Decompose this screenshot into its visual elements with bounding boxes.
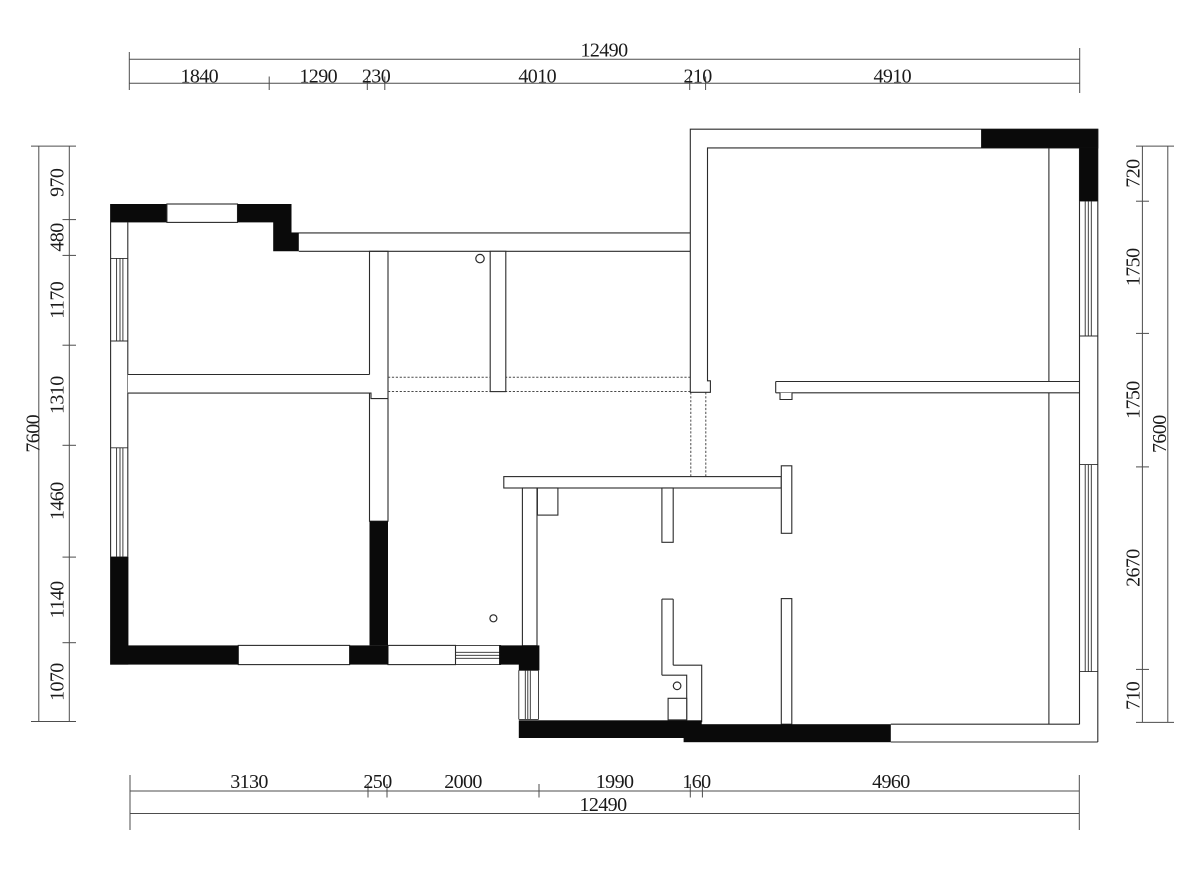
svg-text:720: 720 bbox=[1123, 159, 1145, 188]
svg-text:3130: 3130 bbox=[230, 771, 268, 793]
svg-text:250: 250 bbox=[363, 771, 392, 793]
svg-text:4910: 4910 bbox=[873, 65, 911, 87]
svg-text:1750: 1750 bbox=[1123, 248, 1145, 286]
svg-text:970: 970 bbox=[47, 168, 69, 197]
svg-text:7600: 7600 bbox=[1149, 415, 1171, 453]
svg-text:210: 210 bbox=[683, 65, 712, 87]
svg-text:1460: 1460 bbox=[47, 482, 69, 520]
svg-text:1140: 1140 bbox=[47, 581, 69, 618]
svg-text:2000: 2000 bbox=[444, 771, 482, 793]
svg-text:160: 160 bbox=[682, 771, 711, 793]
svg-text:1990: 1990 bbox=[596, 771, 634, 793]
svg-text:1290: 1290 bbox=[299, 65, 337, 87]
svg-text:710: 710 bbox=[1123, 681, 1145, 710]
svg-text:1070: 1070 bbox=[47, 663, 69, 701]
svg-text:12490: 12490 bbox=[579, 794, 627, 816]
svg-text:1750: 1750 bbox=[1123, 381, 1145, 419]
svg-text:1170: 1170 bbox=[47, 281, 69, 318]
svg-text:1310: 1310 bbox=[47, 376, 69, 414]
svg-text:230: 230 bbox=[362, 65, 391, 87]
svg-text:7600: 7600 bbox=[23, 414, 45, 452]
svg-text:480: 480 bbox=[47, 223, 69, 252]
svg-text:12490: 12490 bbox=[580, 39, 628, 61]
svg-text:1840: 1840 bbox=[180, 65, 218, 87]
svg-text:4010: 4010 bbox=[518, 65, 556, 87]
svg-text:4960: 4960 bbox=[872, 771, 910, 793]
svg-text:2670: 2670 bbox=[1123, 549, 1145, 587]
